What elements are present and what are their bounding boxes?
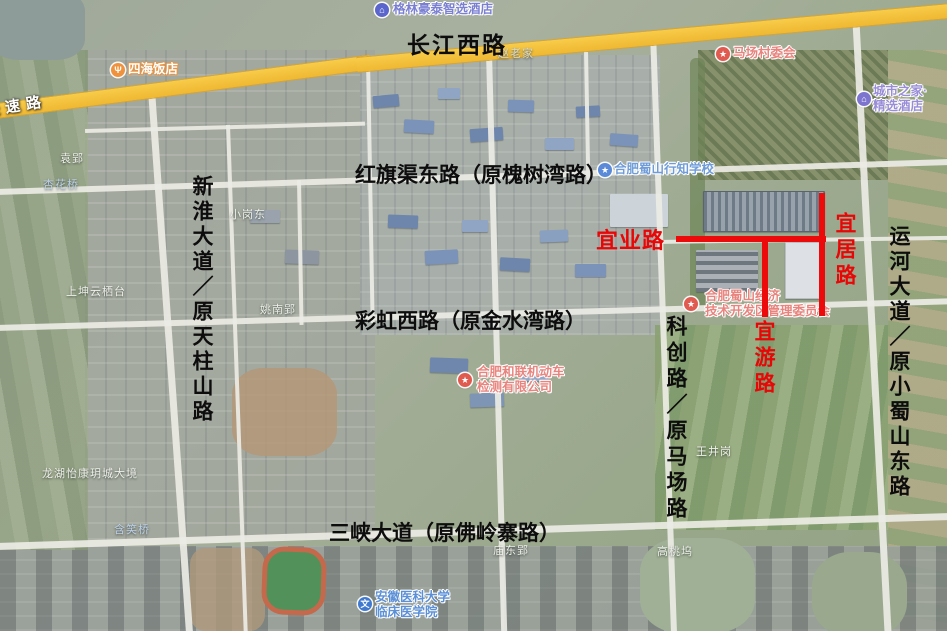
hotel-bed-icon: ⌂ xyxy=(375,3,389,17)
place-label: 袁郢 xyxy=(60,150,84,166)
road-label-xinhuaidadao: 新淮大道／原天柱山路 xyxy=(186,175,216,425)
road-label-changjiangxilu: 长江西路 xyxy=(407,26,507,60)
star-icon: ★ xyxy=(716,47,730,61)
poi-label-chengshizhijia-hotel: 城市之家· 精选酒店 xyxy=(873,84,927,114)
poi-label-xingzhi-school: 合肥蜀山行知学校 xyxy=(614,162,714,177)
poi-label-vehicle-inspection: 合肥和联机动车 检测有限公司 xyxy=(477,365,565,395)
poi-label-sihai-restaurant: 四海饭店 xyxy=(128,62,178,77)
planned-road-label-yiyou: 宜游路 xyxy=(748,320,778,398)
poi-label-greentree-hotel: 格林豪泰智选酒店 xyxy=(393,2,493,17)
satellite-map[interactable]: 长江西路 红旗渠东路（原槐树湾路） 彩虹西路（原金水湾路） 三峡大道（原佛岭寨路… xyxy=(0,0,947,631)
place-label: 杏花桥 xyxy=(43,176,79,192)
planned-road-label-yiye: 宜业路 xyxy=(596,223,665,255)
planned-road-line-yiju xyxy=(819,193,825,316)
hotel-bed-icon: ⌂ xyxy=(857,92,871,106)
poi-label-medical-university: 安徽医科大学 临床医学院 xyxy=(375,590,450,620)
road-label-caihongxilu: 彩虹西路（原金水湾路） xyxy=(355,305,586,335)
star-icon: ★ xyxy=(684,297,698,311)
place-label: 王井岗 xyxy=(696,443,732,459)
star-icon: ★ xyxy=(458,373,472,387)
planned-road-label-yiju: 宜居路 xyxy=(829,212,859,290)
planned-road-line-yiyou xyxy=(762,236,768,317)
planned-road-line-yiye xyxy=(676,236,826,242)
place-label: 龙湖怡康玥城大境 xyxy=(42,465,138,481)
place-label: 含笑桥 xyxy=(114,521,150,537)
road-label-sanxiadadao: 三峡大道（原佛岭寨路） xyxy=(329,517,560,547)
stadium-track xyxy=(261,546,327,616)
school-icon: 文 xyxy=(358,597,372,611)
place-label: 上坤云栖台 xyxy=(66,283,126,299)
place-label: 高桃坞 xyxy=(657,543,693,559)
road-label-yunhedadao: 运河大道／原小蜀山东路 xyxy=(883,225,913,500)
restaurant-icon: Ψ xyxy=(111,63,125,77)
poi-label-machang-committee: 马场村委会 xyxy=(733,46,796,61)
road-label-hongqiqudonglu: 红旗渠东路（原槐树湾路） xyxy=(355,159,607,189)
road-label-kechuanglu: 科创路／原马场路 xyxy=(660,315,690,523)
place-label: 小岗东 xyxy=(230,206,266,222)
place-label: 姚南郢 xyxy=(260,301,296,317)
